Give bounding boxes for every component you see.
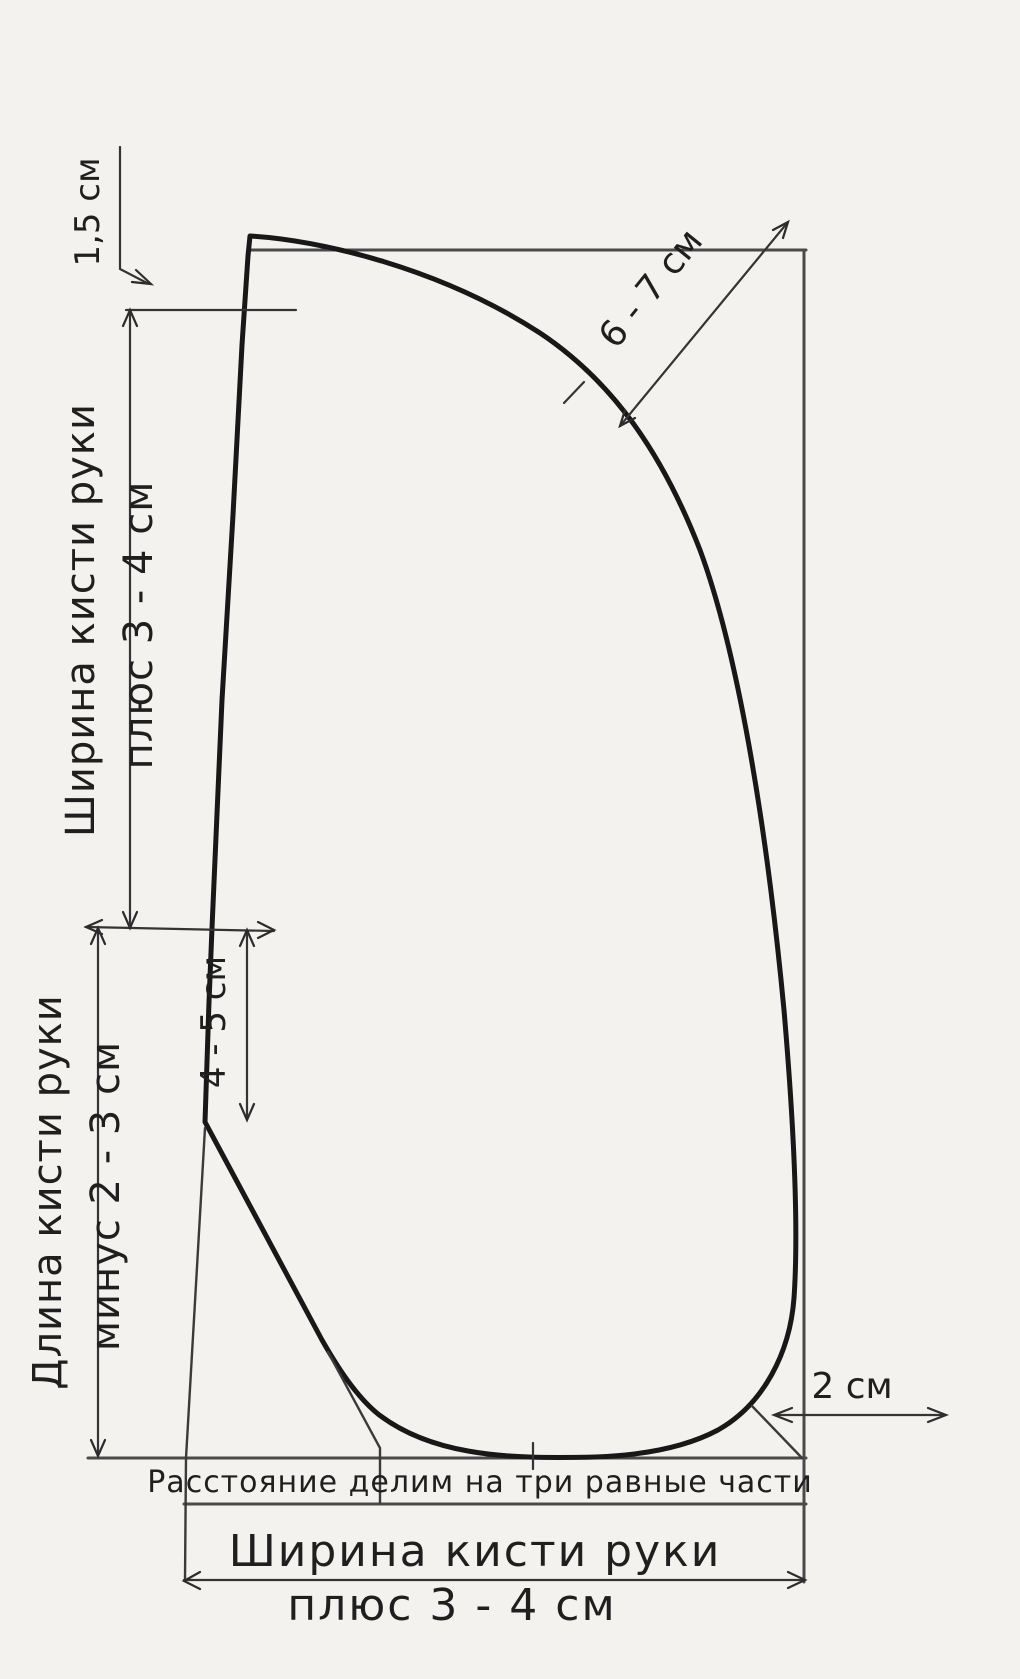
curve-match-tick bbox=[564, 382, 584, 403]
offset-top-label: 1,5 см bbox=[68, 157, 108, 266]
corner-gap-label: 2 см bbox=[811, 1366, 892, 1407]
pattern-drawing-canvas: 1,5 см Ширина кисти руки плюс 3 - 4 см 6… bbox=[0, 0, 1020, 1679]
hand-length-label-line1: Длина кисти руки bbox=[25, 994, 71, 1390]
hand-length-label-line2: минус 2 - 3 см bbox=[83, 1041, 129, 1351]
width-top-label-line1: Ширина кисти руки bbox=[58, 403, 104, 837]
left-extent-line bbox=[185, 1128, 205, 1580]
width-bottom-label-line1: Ширина кисти руки bbox=[229, 1526, 722, 1577]
offset-top-leader-line bbox=[120, 147, 147, 283]
notch-depth-label: 4 - 5 см bbox=[194, 956, 234, 1088]
pattern-outline bbox=[205, 236, 796, 1457]
width-bottom-label-line2: плюс 3 - 4 см bbox=[287, 1580, 616, 1631]
divide-note-label: Расстояние делим на три равные части bbox=[147, 1465, 813, 1500]
width-top-label-line2: плюс 3 - 4 см bbox=[116, 481, 162, 770]
sewing-pattern-diagram: 1,5 см Ширина кисти руки плюс 3 - 4 см 6… bbox=[0, 0, 1020, 1679]
